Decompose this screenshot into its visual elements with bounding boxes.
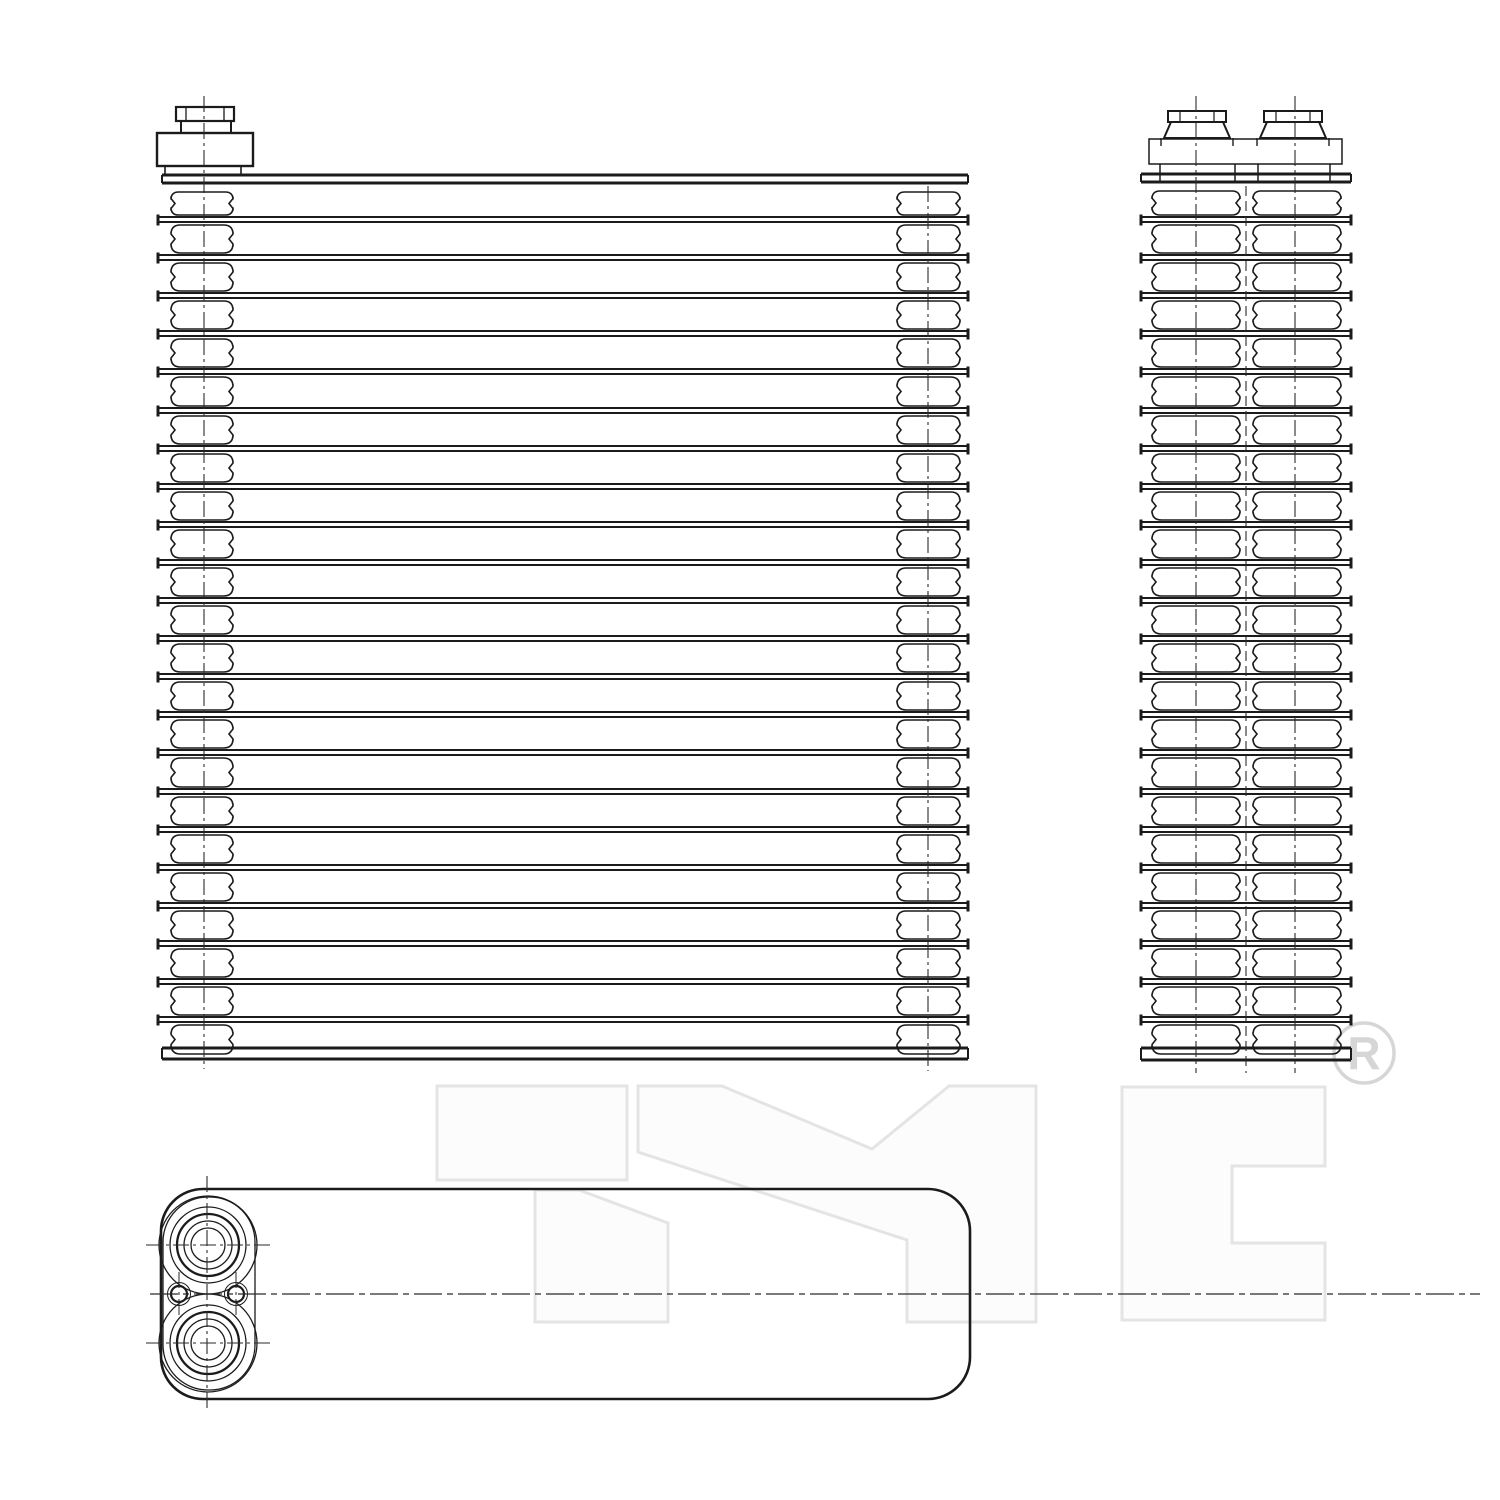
registered-trademark-icon: R	[1347, 1027, 1380, 1079]
plate-cell	[171, 758, 233, 787]
fin-end-cap	[967, 748, 970, 759]
plate-cell	[171, 720, 233, 748]
fin-end-cap	[1350, 787, 1353, 798]
fin-end-cap	[157, 1015, 160, 1026]
plate-cell	[1253, 720, 1341, 748]
plate-cell	[1253, 568, 1341, 596]
fin-end-cap	[157, 482, 160, 493]
fin-end-cap	[157, 863, 160, 874]
plate-cell	[1253, 454, 1341, 482]
plate-cell	[1253, 225, 1341, 253]
plate-cell	[171, 454, 233, 482]
fin-end-cap	[967, 329, 970, 340]
fin-end-cap	[157, 787, 160, 798]
fin-end-cap	[157, 710, 160, 721]
fin-end-cap	[1140, 253, 1143, 264]
fin-end-cap	[157, 672, 160, 683]
fin-end-cap	[967, 825, 970, 836]
fin-end-cap	[1140, 444, 1143, 455]
fin-end-cap	[1350, 977, 1353, 988]
fin-end-cap	[967, 215, 970, 226]
plate-cell	[171, 530, 233, 558]
fin-end-cap	[1140, 672, 1143, 683]
plate-cell	[1253, 377, 1341, 406]
fin-end-cap	[1350, 863, 1353, 874]
plate-cell	[171, 606, 233, 634]
fin-end-cap	[967, 444, 970, 455]
plate-cell	[171, 416, 233, 444]
fin-end-cap	[1140, 367, 1143, 378]
fin-end-cap	[1140, 291, 1143, 302]
fin-end-cap	[1350, 329, 1353, 340]
outlet-stub-taper	[1260, 122, 1326, 138]
fin-end-cap	[1350, 291, 1353, 302]
fin-end-cap	[967, 1015, 970, 1026]
fin-end-cap	[157, 406, 160, 417]
plate-cell	[1253, 263, 1341, 291]
plate-cell	[1253, 416, 1341, 444]
fin-end-cap	[967, 520, 970, 531]
fin-end-cap	[1350, 825, 1353, 836]
fin-end-cap	[1350, 482, 1353, 493]
fin-end-cap	[157, 367, 160, 378]
plate-cell	[171, 873, 233, 901]
fin-end-cap	[157, 291, 160, 302]
side-header-block	[1149, 139, 1342, 164]
drawing-canvas: R	[0, 0, 1500, 1500]
fin-end-cap	[967, 863, 970, 874]
inlet-fitting-body	[157, 133, 253, 166]
fin-end-cap	[157, 634, 160, 645]
fin-end-cap	[1350, 558, 1353, 569]
fin-end-cap	[157, 520, 160, 531]
plate-cell	[1253, 1025, 1341, 1054]
plate-cell	[1253, 987, 1341, 1015]
inlet-fitting-neck	[181, 121, 231, 133]
fin-end-cap	[157, 596, 160, 607]
plate-cell	[171, 301, 233, 329]
plate-cell	[171, 682, 233, 710]
fin-end-cap	[1140, 977, 1143, 988]
plate-cell	[1253, 682, 1341, 710]
plate-cell	[1253, 301, 1341, 329]
fin-end-cap	[1140, 558, 1143, 569]
outlet-stub-cap	[1264, 111, 1322, 122]
fin-end-cap	[1140, 787, 1143, 798]
watermark-letter-T-bar	[437, 1086, 627, 1180]
fin-end-cap	[1350, 520, 1353, 531]
plate-cell	[1253, 758, 1341, 787]
fin-end-cap	[1140, 710, 1143, 721]
fin-end-cap	[1350, 672, 1353, 683]
fin-end-cap	[157, 215, 160, 226]
plate-cell	[171, 797, 233, 825]
fin-end-cap	[967, 939, 970, 950]
fin-end-cap	[1350, 634, 1353, 645]
fin-end-cap	[1140, 596, 1143, 607]
fin-end-cap	[1140, 939, 1143, 950]
fin-end-cap	[1140, 634, 1143, 645]
fin-end-cap	[967, 253, 970, 264]
fin-end-cap	[1350, 444, 1353, 455]
fin-end-cap	[157, 901, 160, 912]
fin-end-cap	[1140, 863, 1143, 874]
plate-cell	[1253, 835, 1341, 863]
plate-cell	[171, 1025, 233, 1054]
watermark-letter-Y	[638, 1086, 1036, 1322]
registered-letter: R	[1347, 1027, 1380, 1079]
fin-end-cap	[157, 939, 160, 950]
fin-end-cap	[1140, 215, 1143, 226]
fin-end-cap	[1350, 596, 1353, 607]
fin-end-cap	[157, 444, 160, 455]
fin-end-cap	[967, 901, 970, 912]
plate-cell	[171, 225, 233, 253]
outlet-stub-cap	[1168, 111, 1226, 122]
plate-cell	[171, 263, 233, 291]
evaporator-technical-drawing: R	[0, 0, 1500, 1500]
plate-cell	[1253, 911, 1341, 939]
plate-cell	[1253, 644, 1341, 672]
fin-end-cap	[967, 977, 970, 988]
fin-end-cap	[1140, 825, 1143, 836]
fin-end-cap	[967, 710, 970, 721]
plate-cell	[171, 835, 233, 863]
side-view	[1140, 96, 1353, 1073]
fin-end-cap	[157, 558, 160, 569]
fin-end-cap	[1350, 748, 1353, 759]
fin-end-cap	[1350, 1015, 1353, 1026]
fin-end-cap	[157, 748, 160, 759]
fin-end-cap	[967, 482, 970, 493]
plate-cell	[171, 644, 233, 672]
outlet-stub-taper	[1164, 122, 1230, 138]
fin-end-cap	[1350, 367, 1353, 378]
fin-end-cap	[967, 367, 970, 378]
fin-end-cap	[157, 329, 160, 340]
fin-end-cap	[967, 634, 970, 645]
fin-end-cap	[1350, 406, 1353, 417]
plate-cell	[171, 949, 233, 977]
fin-end-cap	[967, 596, 970, 607]
fin-end-cap	[1140, 1015, 1143, 1026]
watermark-letter-T-stem	[535, 1190, 668, 1322]
fin-end-cap	[1140, 901, 1143, 912]
plate-cell	[1253, 191, 1341, 215]
plate-cell	[1253, 492, 1341, 520]
front-view	[157, 96, 970, 1071]
fin-end-cap	[967, 558, 970, 569]
tyc-watermark	[437, 1023, 1394, 1322]
fin-end-cap	[157, 977, 160, 988]
fin-end-cap	[1140, 329, 1143, 340]
fin-end-cap	[157, 825, 160, 836]
fin-end-cap	[967, 291, 970, 302]
plate-cell	[171, 492, 233, 520]
plate-cell	[1253, 339, 1341, 367]
fin-end-cap	[967, 787, 970, 798]
fin-end-cap	[1140, 748, 1143, 759]
plate-cell	[1253, 797, 1341, 825]
fin-end-cap	[1350, 939, 1353, 950]
fin-end-cap	[967, 672, 970, 683]
plate-cell	[171, 192, 233, 215]
watermark-letter-C	[1122, 1087, 1325, 1320]
plate-cell	[1253, 873, 1341, 901]
fin-end-cap	[1350, 215, 1353, 226]
plate-cell	[171, 911, 233, 939]
fin-end-cap	[1140, 482, 1143, 493]
plate-cell	[171, 987, 233, 1015]
fin-end-cap	[1350, 901, 1353, 912]
plate-cell	[1253, 949, 1341, 977]
fin-end-cap	[967, 406, 970, 417]
fin-end-cap	[1350, 710, 1353, 721]
plate-cell	[171, 568, 233, 596]
fin-end-cap	[1140, 520, 1143, 531]
fin-end-cap	[1350, 253, 1353, 264]
plate-cell	[171, 339, 233, 367]
inlet-fitting-cap	[176, 107, 234, 121]
plate-cell	[1253, 530, 1341, 558]
fin-end-cap	[157, 253, 160, 264]
plate-cell	[1253, 606, 1341, 634]
fin-end-cap	[1140, 406, 1143, 417]
plate-cell	[171, 377, 233, 406]
